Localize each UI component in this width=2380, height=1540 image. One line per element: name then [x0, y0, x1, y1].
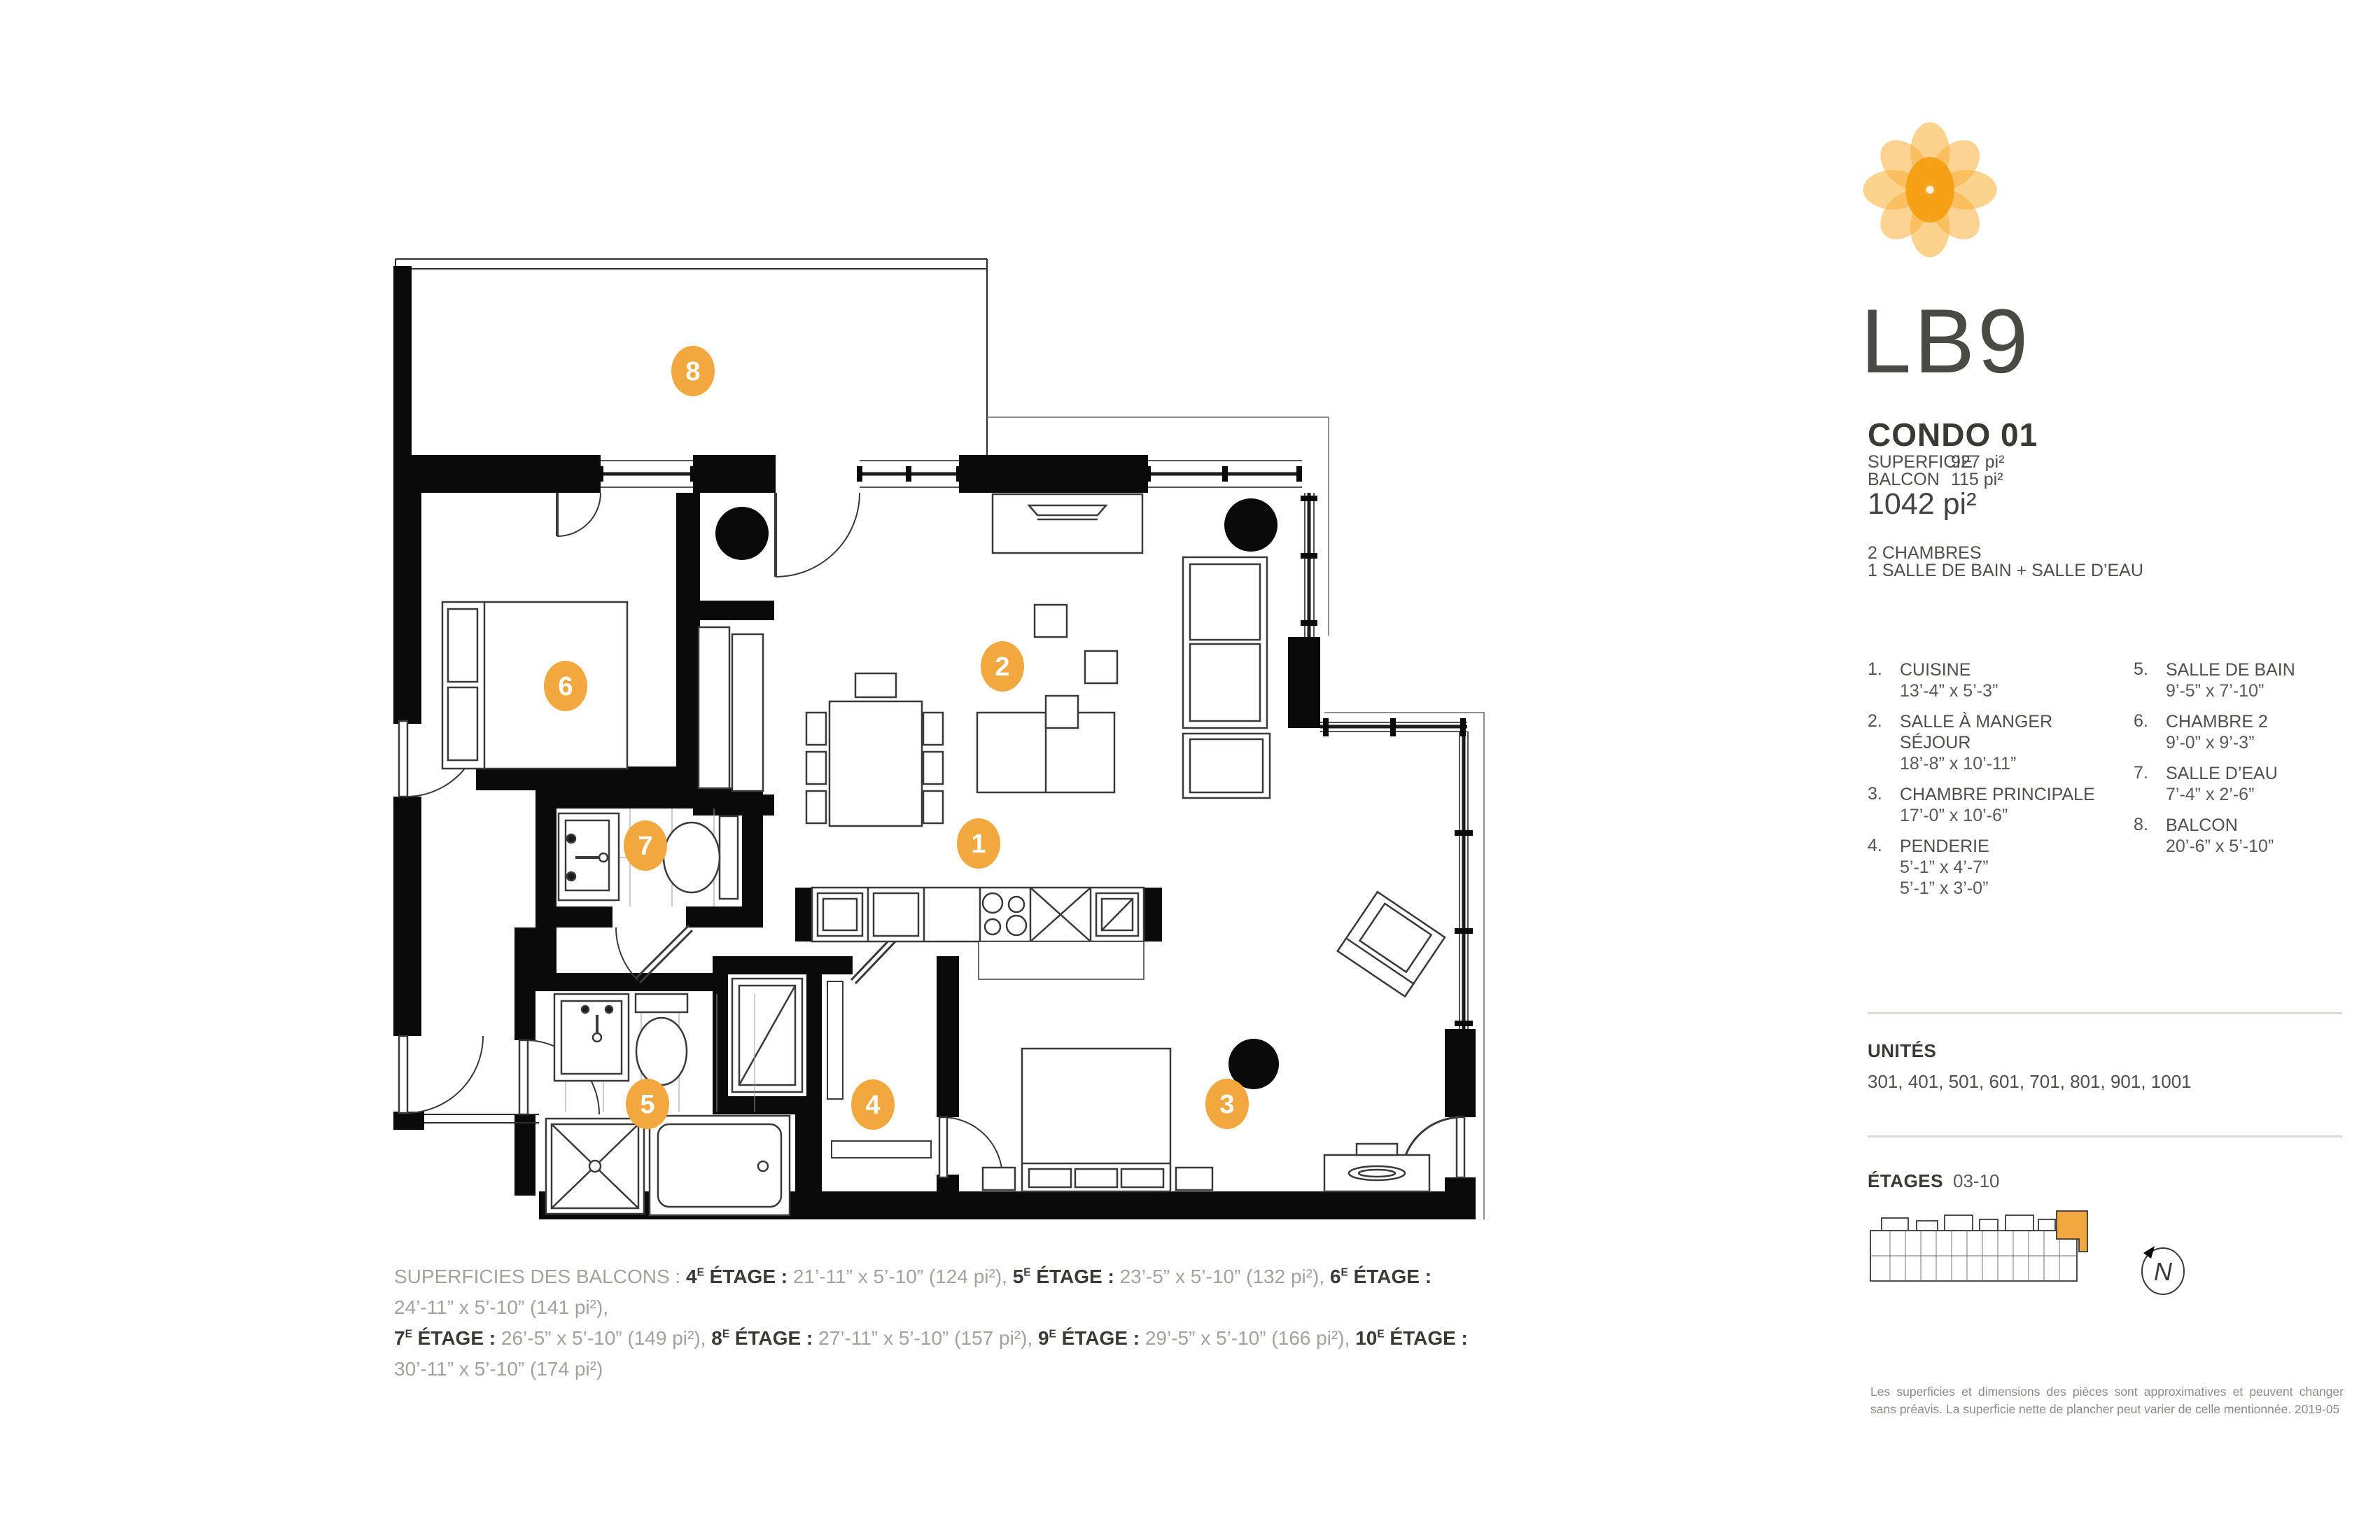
key-plan: [1862, 1197, 2114, 1295]
room-list-item: 2. SALLE À MANGER SÉJOUR 18’-8” x 10’-11…: [1868, 711, 2120, 774]
room-name: CUISINE: [1900, 659, 1998, 680]
etages-range: 03-10: [1953, 1170, 2000, 1191]
etages-row: ÉTAGES03-10: [1868, 1170, 1999, 1192]
total-area: 1042 pi²: [1868, 487, 1976, 521]
side-table-icon: [1035, 605, 1067, 637]
dining-table-icon: [806, 673, 943, 826]
wardrobe-icon: [699, 627, 729, 788]
page-title: CONDO 01: [1868, 416, 2038, 454]
balcony-side-wall: [393, 266, 412, 456]
dishwasher-icon: [1096, 893, 1138, 936]
unites-label: UNITÉS: [1868, 1040, 1936, 1062]
laundry-closet: [732, 979, 802, 1092]
room-dims: 17’-0” x 10’-6”: [1900, 805, 2095, 826]
room-dims: 5’-1” x 3’-0”: [1900, 878, 1989, 899]
area-summary: SUPERFICIE 927 pi² BALCON 115 pi²: [1868, 454, 2004, 489]
room-dims: 9’-0” x 9’-3”: [2166, 732, 2268, 753]
room-marker-8: 8: [671, 346, 715, 396]
room-name: CHAMBRE PRINCIPALE: [1900, 784, 2095, 805]
room-list-item: 6. CHAMBRE 2 9’-0” x 9’-3”: [2134, 711, 2380, 753]
superficie-value: 927 pi²: [1951, 452, 2004, 472]
toilet-icon: [664, 822, 720, 892]
column-icon: [715, 507, 769, 560]
room-number: 2.: [1868, 711, 1900, 774]
balcony-floor: 9E ÉTAGE :: [1038, 1327, 1140, 1349]
balcony-floor: 4E ÉTAGE :: [686, 1266, 787, 1287]
shower-icon: [546, 1119, 644, 1214]
balcony-value: 21’-11” x 5’-10” (124 pi²),: [793, 1266, 1007, 1287]
toilet-tank-icon: [636, 994, 687, 1012]
side-table-icon: [1085, 651, 1117, 683]
penderie-shelves: [827, 981, 931, 1158]
room-name: PENDERIE: [1900, 836, 1989, 857]
balcony-floor: 5E ÉTAGE :: [1013, 1266, 1114, 1287]
superficie-row: SUPERFICIE 927 pi²: [1868, 454, 2004, 471]
room-marker-3: 3: [1205, 1079, 1249, 1129]
kitchen-counter: [812, 888, 1144, 979]
nightstand-icon: [983, 1168, 1015, 1190]
counter-overhang: [979, 941, 1144, 979]
unit-program: 2 CHAMBRES 1 SALLE DE BAIN + SALLE D’EAU: [1868, 545, 2143, 580]
balcony-areas: SUPERFICIES DES BALCONS : 4E ÉTAGE : 21’…: [394, 1261, 1486, 1385]
room-name: SALLE À MANGER: [1900, 711, 2052, 732]
room-list-item: 8. BALCON 20’-6” x 5’-10”: [2134, 815, 2380, 857]
superficie-label: SUPERFICIE: [1868, 454, 1946, 471]
desk-icon: [1324, 1144, 1429, 1191]
room-list-col2: 5. SALLE DE BAIN 9’-5” x 7’-10” 6. CHAMB…: [2134, 659, 2380, 867]
room-dims: 13’-4” x 5’-3”: [1900, 680, 1998, 701]
disclaimer-line: sans préavis. La superficie nette de pla…: [1870, 1402, 2339, 1416]
room-name: CHAMBRE 2: [2166, 711, 2268, 732]
disclaimer: Les superficies et dimensions des pièces…: [1870, 1383, 2344, 1418]
disclaimer-line: Les superficies et dimensions des pièces…: [1870, 1383, 2344, 1401]
balcon-row: BALCON 115 pi²: [1868, 471, 2004, 489]
etages-label: ÉTAGES: [1868, 1170, 1943, 1191]
svg-text:2: 2: [995, 652, 1009, 682]
room-number: 4.: [1868, 836, 1900, 899]
room-number: 7.: [2134, 763, 2166, 805]
balcony-value: 23’-5” x 5’-10” (132 pi²),: [1120, 1266, 1325, 1287]
room-number: 6.: [2134, 711, 2166, 753]
balcony-prefix: SUPERFICIES DES BALCONS :: [394, 1266, 680, 1287]
room-number: 3.: [1868, 784, 1900, 826]
brand-wordmark: LB9: [1861, 288, 2031, 393]
svg-text:3: 3: [1219, 1090, 1234, 1119]
room-dims: 5’-1” x 4’-7”: [1900, 857, 1989, 878]
balcony-value: 29’-5” x 5’-10” (166 pi²),: [1145, 1327, 1350, 1349]
bedroom2-furniture: [442, 602, 763, 791]
svg-text:1: 1: [971, 829, 986, 859]
room-dims: 18’-8” x 10’-11”: [1900, 753, 2052, 774]
sofa-icon: [1183, 557, 1270, 798]
north-letter: N: [2154, 1257, 2173, 1286]
room-dims: 9’-5” x 7’-10”: [2166, 680, 2295, 701]
room-marker-2: 2: [981, 641, 1024, 692]
room-dims: 20’-6” x 5’-10”: [2166, 836, 2274, 857]
room-number: 8.: [2134, 815, 2166, 857]
room-name: SALLE D’EAU: [2166, 763, 2278, 784]
room-number: 1.: [1868, 659, 1900, 701]
column-icon: [1224, 498, 1277, 552]
room-name: SÉJOUR: [1900, 732, 2052, 753]
balcony-floor: 7E ÉTAGE :: [394, 1327, 496, 1349]
sideboard-icon: [993, 494, 1142, 553]
balcony-value: 27’-11” x 5’-10” (157 pi²),: [818, 1327, 1032, 1349]
svg-text:7: 7: [638, 832, 652, 861]
balcony-value: 30’-11” x 5’-10” (174 pi²): [394, 1358, 603, 1380]
room-number: 5.: [2134, 659, 2166, 701]
wardrobe-icon: [732, 634, 763, 791]
flower-logo-icon: [1859, 99, 2003, 281]
room-list-item: 3. CHAMBRE PRINCIPALE 17’-0” x 10’-6”: [1868, 784, 2120, 826]
room-list-item: 7. SALLE D’EAU 7’-4” x 2’-6”: [2134, 763, 2380, 805]
program-line: 2 CHAMBRES: [1868, 545, 2143, 562]
unites-values: 301, 401, 501, 601, 701, 801, 901, 1001: [1868, 1071, 2192, 1093]
divider: [1868, 1012, 2342, 1014]
room-name: BALCON: [2166, 815, 2274, 836]
door-bedroom2-balcony: [557, 493, 601, 536]
living-furniture: [806, 494, 1270, 826]
room-marker-7: 7: [624, 820, 667, 871]
side-table-icon: [1046, 696, 1078, 728]
bathtub-icon: [650, 1116, 790, 1215]
floor-plan: 1 2 3 4 5 6 7 8: [378, 231, 1526, 1267]
svg-text:4: 4: [865, 1091, 880, 1120]
balcon-value: 115 pi²: [1951, 470, 2003, 489]
svg-text:6: 6: [558, 672, 573, 701]
room-list-item: 4. PENDERIE 5’-1” x 4’-7” 5’-1” x 3’-0”: [1868, 836, 2120, 899]
divider: [1868, 1135, 2342, 1137]
program-line: 1 SALLE DE BAIN + SALLE D’EAU: [1868, 562, 2143, 580]
balcony-floor: 6E ÉTAGE :: [1330, 1266, 1431, 1287]
room-marker-6: 6: [544, 661, 587, 711]
room-list-col1: 1. CUISINE 13’-4” x 5’-3” 2. SALLE À MAN…: [1868, 659, 2120, 909]
balcon-label: BALCON: [1868, 471, 1946, 489]
walls: [393, 455, 1476, 1219]
balcony-floor: 8E ÉTAGE :: [711, 1327, 813, 1349]
svg-text:5: 5: [640, 1090, 654, 1119]
balcony-value: 26’-5” x 5’-10” (149 pi²),: [501, 1327, 706, 1349]
room-marker-5: 5: [626, 1079, 669, 1129]
north-arrow-icon: N: [2129, 1240, 2194, 1303]
room-list-item: 1. CUISINE 13’-4” x 5’-3”: [1868, 659, 2120, 701]
toilet-icon: [636, 1018, 687, 1085]
room-marker-4: 4: [851, 1079, 895, 1130]
room-list-item: 5. SALLE DE BAIN 9’-5” x 7’-10”: [2134, 659, 2380, 701]
door-entry: [399, 1036, 483, 1113]
room-dims: 7’-4” x 2’-6”: [2166, 784, 2278, 805]
toilet-tank-icon: [720, 816, 738, 899]
room-marker-1: 1: [957, 818, 1000, 869]
room-name: SALLE DE BAIN: [2166, 659, 2295, 680]
armchair-icon: [1338, 892, 1445, 996]
nightstand-icon: [1176, 1168, 1212, 1190]
balcony-floor: 10E ÉTAGE :: [1355, 1327, 1468, 1349]
svg-text:8: 8: [685, 357, 700, 386]
door-living-balcony: [776, 493, 860, 577]
balcony-value: 24’-11” x 5’-10” (141 pi²),: [394, 1296, 608, 1318]
